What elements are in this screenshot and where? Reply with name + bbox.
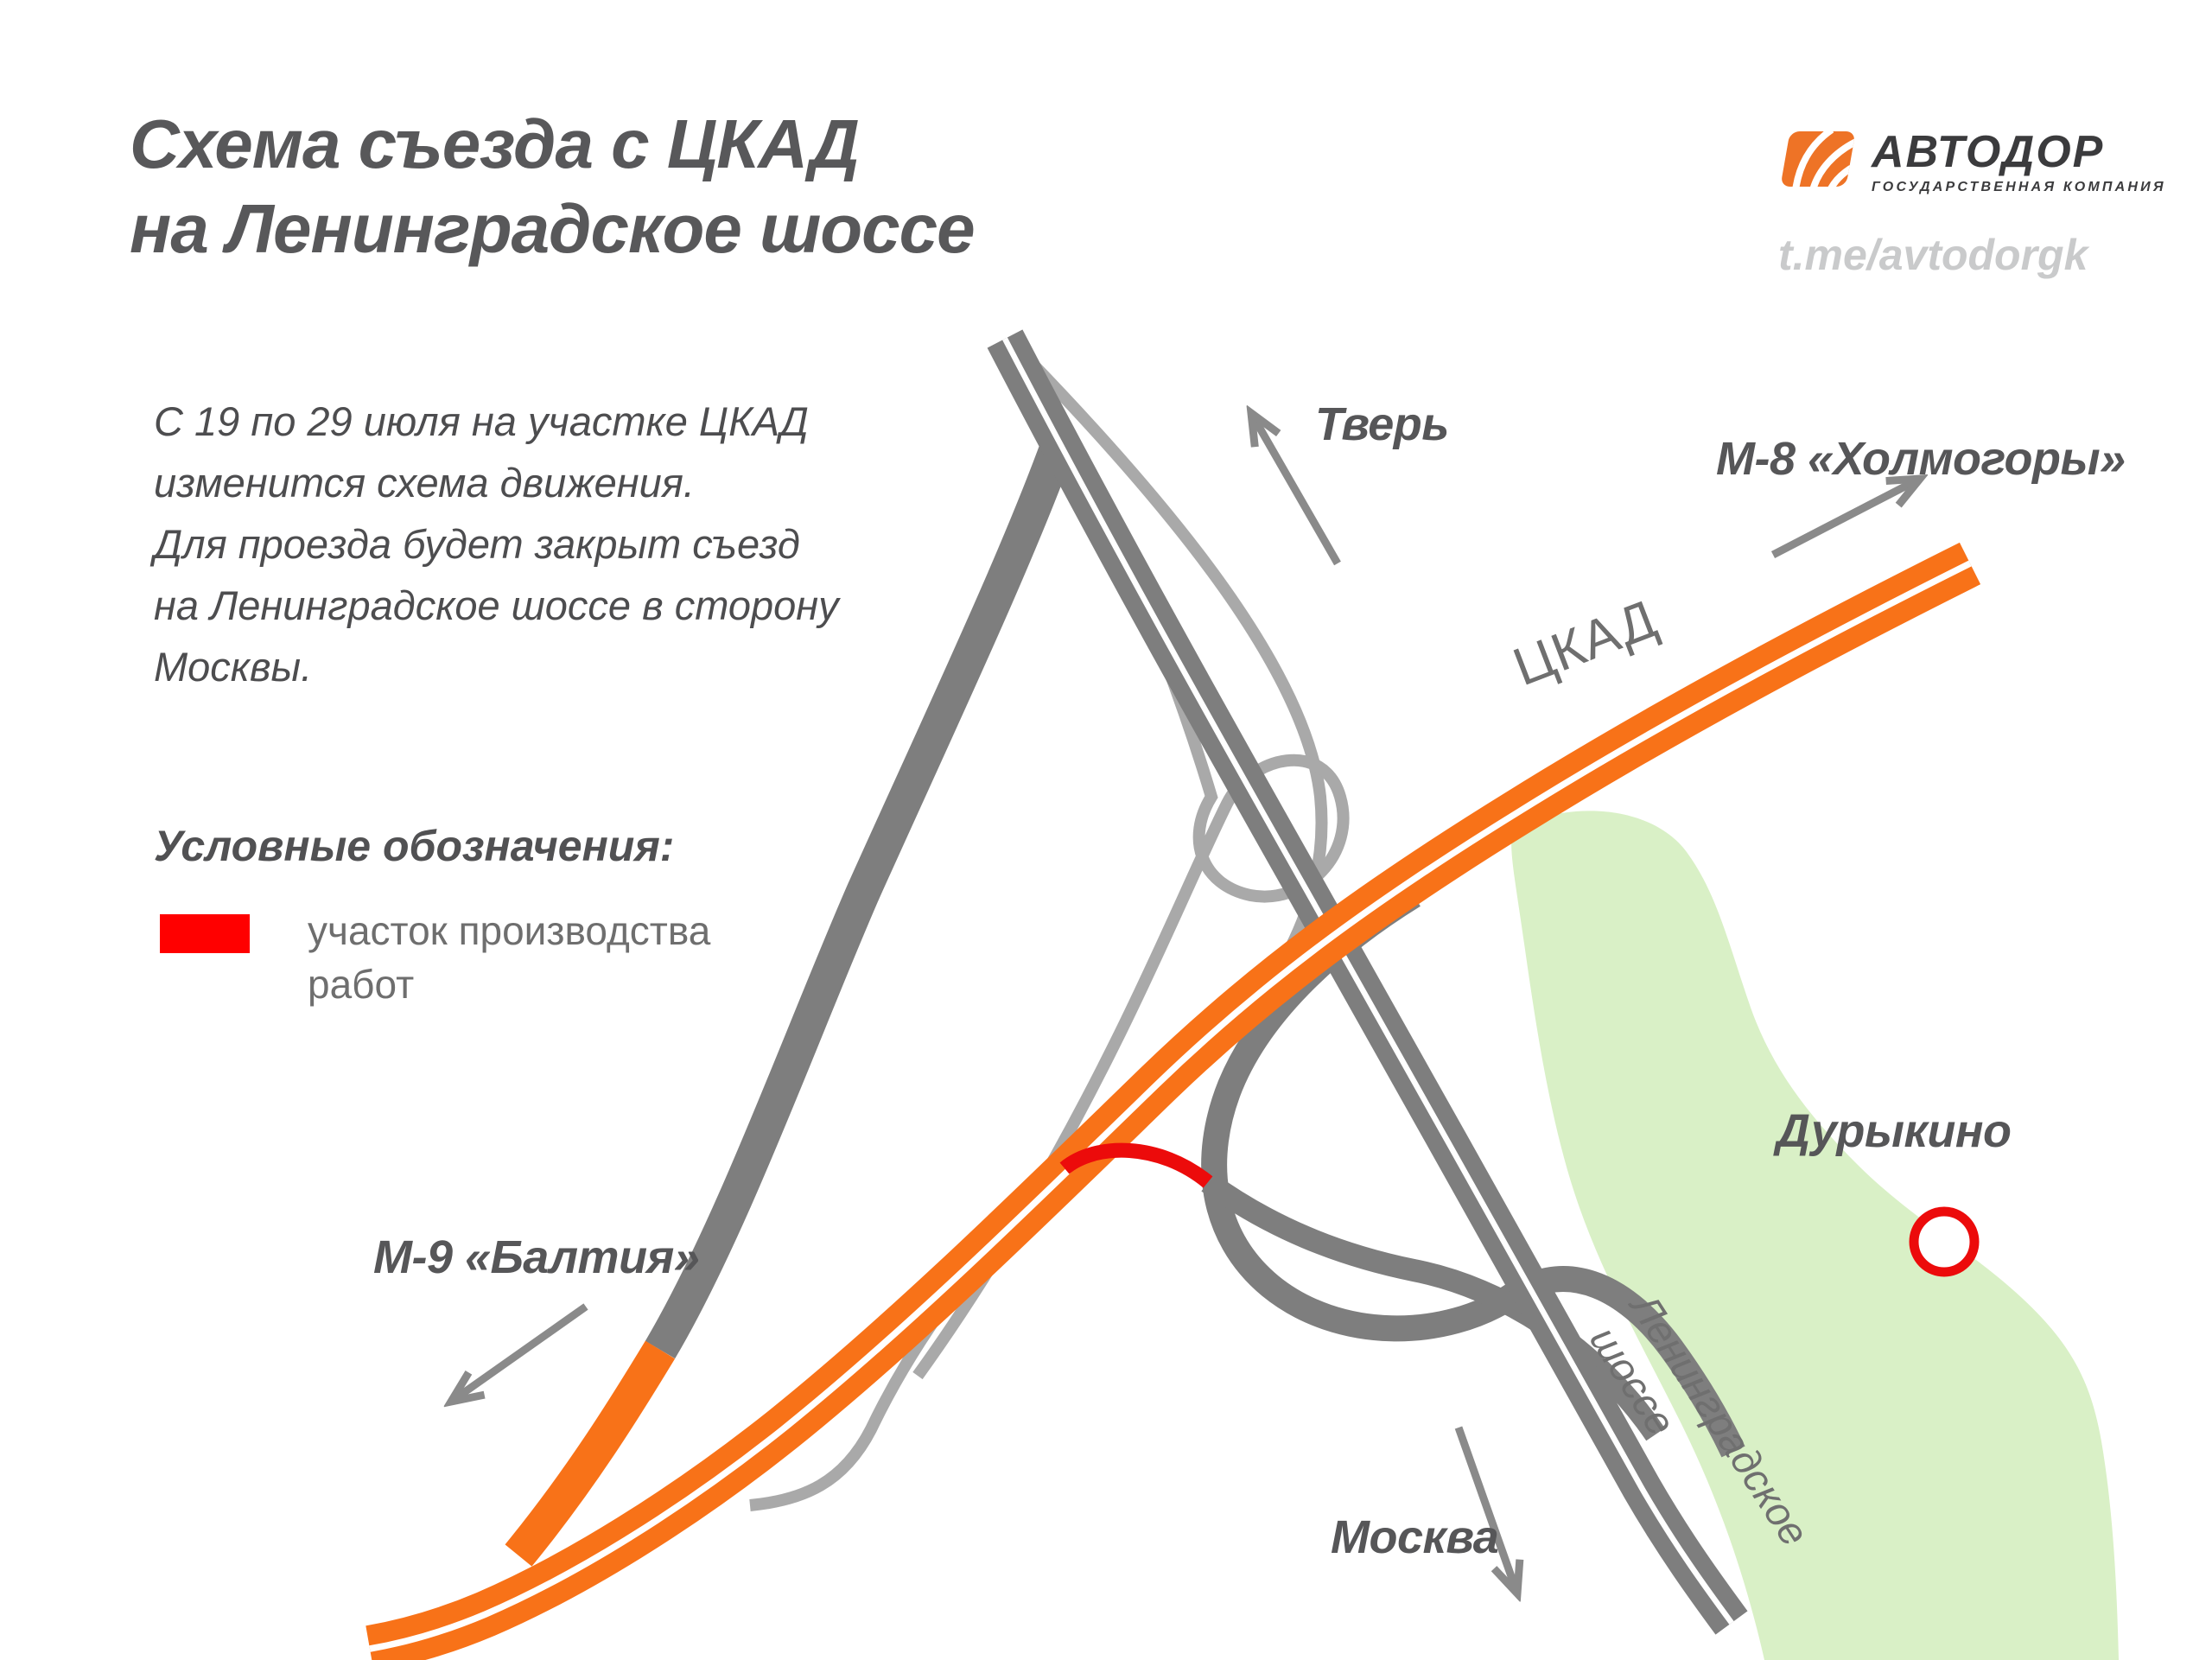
legend-work-zone-swatch [160, 914, 250, 953]
map-label-m8-kholmogory: М-8 «Холмогоры» [1716, 432, 2126, 486]
arrow-m8 [1773, 479, 1920, 555]
avtodor-tagline: ГОСУДАРСТВЕННАЯ КОМПАНИЯ [1872, 180, 2166, 195]
avtodor-logo-icon [1777, 130, 1859, 190]
map-label-m9-baltia: М-9 «Балтия» [373, 1231, 699, 1284]
description-text: С 19 по 29 июля на участке ЦКАД изменитс… [154, 391, 839, 697]
legend-heading: Условные обозначения: [154, 821, 674, 871]
page-title-line1: Схема съезда с ЦКАД [130, 102, 975, 187]
avtodor-brand: АВТОДОР [1872, 130, 2166, 175]
arrow-m9 [451, 1307, 586, 1402]
avtodor-logo-text: АВТОДОР ГОСУДАРСТВЕННАЯ КОМПАНИЯ [1872, 130, 2166, 195]
page-title-line2: на Ленинградское шоссе [130, 187, 975, 271]
page-title: Схема съезда с ЦКАД на Ленинградское шос… [130, 102, 975, 271]
description-line: на Ленинградское шоссе в сторону [154, 575, 839, 636]
telegram-handle: t.me/avtodorgk [1778, 230, 2088, 280]
description-line: Для проезда будет закрыт съезд [154, 513, 839, 575]
map-label-tver: Тверь [1315, 398, 1449, 451]
avtodor-logo: АВТОДОР ГОСУДАРСТВЕННАЯ КОМПАНИЯ [1777, 130, 2166, 195]
infographic-root: Схема съезда с ЦКАД на Ленинградское шос… [0, 0, 2212, 1660]
map-label-durykino: Дурыкино [1777, 1104, 2011, 1158]
settlement-area [1511, 811, 2119, 1660]
description-line: изменится схема движения. [154, 452, 839, 513]
description-line: С 19 по 29 июля на участке ЦКАД [154, 391, 839, 452]
work-zone-marker [1914, 1212, 1974, 1272]
legend-label-line1: участок производства [308, 904, 710, 957]
description-line: Москвы. [154, 636, 839, 697]
legend-work-zone-label: участок производства работ [308, 904, 710, 1011]
map-label-moscow: Москва [1331, 1511, 1498, 1564]
legend-label-line2: работ [308, 957, 710, 1011]
